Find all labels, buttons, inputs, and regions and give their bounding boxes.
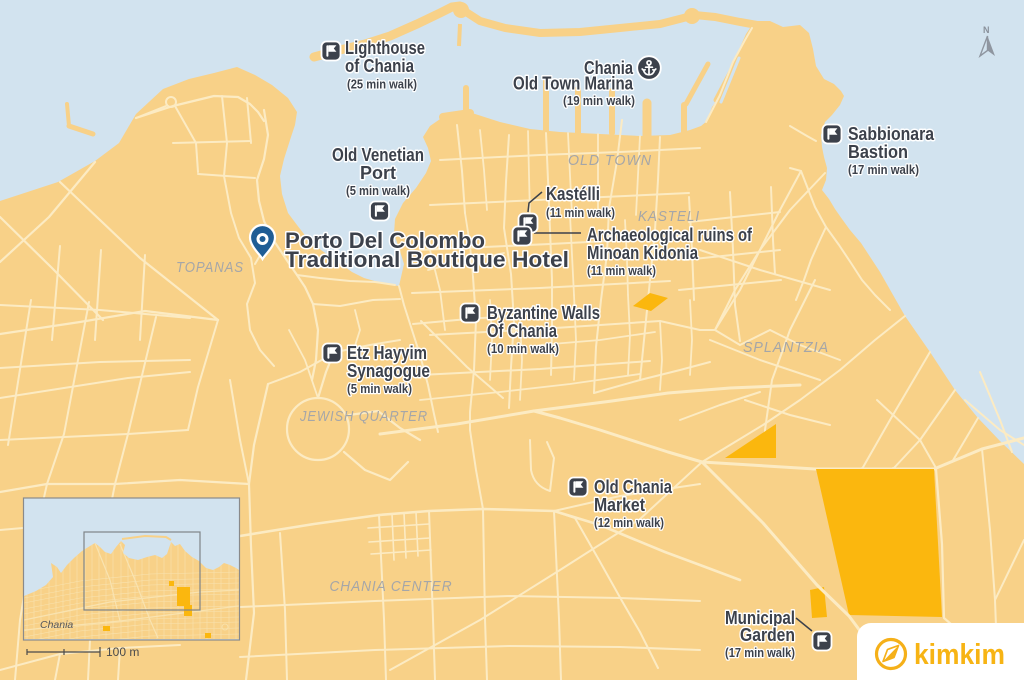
svg-text:(5 min walk): (5 min walk): [346, 183, 410, 198]
svg-text:SPLANTZIA: SPLANTZIA: [743, 339, 829, 356]
svg-text:Old Town Marina: Old Town Marina: [513, 73, 634, 94]
svg-text:Synagogue: Synagogue: [347, 360, 430, 381]
svg-text:kimkim: kimkim: [914, 639, 1005, 671]
svg-text:Kastélli: Kastélli: [546, 183, 600, 204]
svg-text:(5 min walk): (5 min walk): [347, 381, 412, 396]
svg-text:N: N: [983, 25, 990, 35]
svg-text:(11 min walk): (11 min walk): [587, 263, 656, 278]
svg-text:(19 min walk): (19 min walk): [563, 93, 635, 108]
svg-text:(25 min walk): (25 min walk): [347, 77, 417, 92]
svg-text:(17 min walk): (17 min walk): [848, 162, 919, 177]
svg-text:TOPANAS: TOPANAS: [176, 259, 244, 276]
svg-text:(10 min walk): (10 min walk): [487, 341, 559, 356]
svg-text:Garden: Garden: [740, 624, 795, 645]
svg-text:(11 min walk): (11 min walk): [546, 205, 615, 220]
svg-text:Port: Port: [360, 162, 396, 183]
svg-text:Market: Market: [594, 494, 645, 515]
svg-text:Traditional Boutique Hotel: Traditional Boutique Hotel: [285, 247, 569, 272]
svg-text:(12 min walk): (12 min walk): [594, 515, 664, 530]
svg-text:of Chania: of Chania: [345, 55, 415, 76]
svg-text:JEWISH QUARTER: JEWISH QUARTER: [299, 408, 428, 425]
svg-text:CHANIA CENTER: CHANIA CENTER: [330, 578, 453, 595]
svg-text:(17 min walk): (17 min walk): [725, 645, 795, 660]
svg-text:Of Chania: Of Chania: [487, 320, 558, 341]
svg-text:Chania: Chania: [40, 619, 73, 631]
svg-text:KASTELI: KASTELI: [638, 208, 700, 225]
svg-text:Minoan Kidonia: Minoan Kidonia: [587, 242, 699, 263]
svg-text:OLD TOWN: OLD TOWN: [568, 152, 652, 169]
svg-text:Bastion: Bastion: [848, 141, 908, 162]
svg-text:100 m: 100 m: [106, 645, 139, 659]
